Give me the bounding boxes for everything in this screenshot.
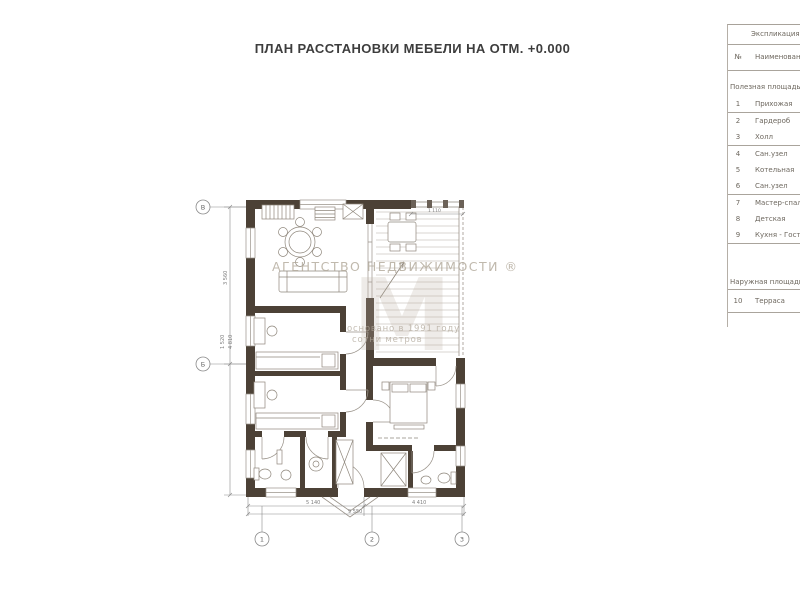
row-name: Кухня - Гостиная: [748, 232, 800, 239]
watermark-brand: АГЕНТСТВО НЕДВИЖИМОСТИ ®: [272, 259, 518, 274]
row-no: 7: [728, 200, 748, 207]
axis-label-v: В: [201, 204, 205, 212]
row-no: 5: [728, 167, 748, 174]
watermark-logo: М: [352, 257, 452, 374]
row-no: 4: [728, 151, 748, 158]
explication-table: Экспликация № Наименование Полезная площ…: [727, 24, 800, 327]
table-spacer: [728, 244, 800, 275]
row-name: Терраса: [748, 298, 800, 305]
floor-plan-drawing: 5 140 4 410 9 550 3 560 1 520 4 810 1 11…: [0, 0, 800, 600]
row-no: 1: [728, 101, 748, 108]
bathroom-fixtures: [254, 450, 456, 484]
row-name: Мастер-спальня: [748, 200, 800, 207]
living-room-furniture: [262, 204, 363, 292]
explication-header: № Наименование: [728, 45, 800, 71]
row-no: 2: [728, 118, 748, 125]
row-name: Детская: [748, 216, 800, 223]
dim-left-c: 4 810: [228, 335, 234, 349]
explication-row: 4 Сан.узел: [728, 146, 800, 162]
explication-row: 5 Котельная: [728, 162, 800, 178]
section-label-useful-area: Полезная площадь: [728, 71, 800, 96]
explication-row: 1 Прихожая: [728, 96, 800, 113]
watermark-line1: основано в 1991 году: [347, 324, 460, 334]
row-no: 6: [728, 183, 748, 190]
row-no: 8: [728, 216, 748, 223]
column-header-name: Наименование: [748, 54, 800, 61]
explication-row: 2 Гардероб: [728, 113, 800, 129]
row-name: Прихожая: [748, 101, 800, 108]
dim-bottom-left: 5 140: [306, 500, 320, 506]
floor-plan-page: ПЛАН РАССТАНОВКИ МЕБЕЛИ НА ОТМ. +0.000: [0, 0, 800, 600]
explication-row: 7 Мастер-спальня: [728, 195, 800, 211]
axis-label-2: 2: [370, 536, 374, 544]
explication-row: 3 Холл: [728, 129, 800, 146]
master-bedroom-furniture: [378, 382, 435, 438]
column-header-no: №: [728, 54, 748, 61]
dim-bottom-right: 4 410: [412, 500, 426, 506]
watermark-line2: сотни метров: [352, 335, 422, 345]
explication-title: Экспликация: [728, 25, 800, 45]
axis-label-b: Б: [201, 361, 205, 369]
row-name: Холл: [748, 134, 800, 141]
explication-row: 8 Детская: [728, 211, 800, 227]
row-no: 9: [728, 232, 748, 239]
explication-row: 6 Сан.узел: [728, 178, 800, 195]
dim-bottom-total: 9 550: [348, 509, 362, 515]
explication-row: 10 Терраса: [728, 290, 800, 313]
explication-row: 9 Кухня - Гостиная: [728, 227, 800, 244]
bedroom1-furniture: [254, 318, 338, 369]
row-name: Сан.узел: [748, 183, 800, 190]
row-name: Гардероб: [748, 118, 800, 125]
section-label-outdoor-area: Наружная площадь: [728, 275, 800, 290]
bedroom2-furniture: [254, 382, 338, 429]
axis-label-3: 3: [460, 536, 464, 544]
dim-left-a: 3 560: [223, 271, 229, 285]
dim-left-b: 1 520: [220, 335, 226, 349]
row-no: 10: [728, 298, 748, 305]
dim-terrace-top: 1 110: [428, 208, 441, 214]
axis-label-1: 1: [260, 536, 264, 544]
row-name: Сан.узел: [748, 151, 800, 158]
row-no: 3: [728, 134, 748, 141]
row-name: Котельная: [748, 167, 800, 174]
